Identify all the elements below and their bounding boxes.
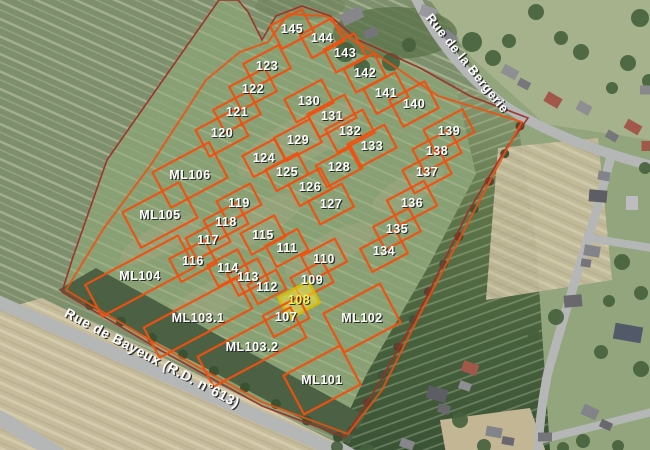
tree — [634, 286, 648, 300]
parcel-label-111: 111 — [277, 241, 298, 255]
parcel-label-129: 129 — [287, 133, 309, 147]
parcel-label-ML106: ML106 — [169, 168, 210, 182]
parcel-label-116: 116 — [182, 254, 204, 268]
parcel-label-118: 118 — [215, 215, 237, 229]
tree — [485, 50, 501, 66]
tree — [594, 345, 608, 359]
parcel-label-121: 121 — [226, 105, 248, 119]
parcel-label-143: 143 — [334, 46, 356, 60]
parcel-label-125: 125 — [276, 165, 298, 179]
house-roof — [580, 258, 591, 268]
tree — [614, 254, 630, 270]
tree — [573, 44, 589, 60]
parcel-label-135: 135 — [386, 222, 408, 236]
parcel-label-ML102: ML102 — [341, 311, 382, 325]
parcel-label-132: 132 — [339, 124, 361, 138]
parcel-label-119: 119 — [228, 196, 250, 210]
parcel-label-145: 145 — [281, 22, 303, 36]
parcel-label-137: 137 — [416, 165, 438, 179]
parcel-label-112: 112 — [256, 280, 278, 294]
parcel-label-139: 139 — [438, 124, 460, 138]
parcel-label-138: 138 — [426, 144, 448, 158]
house-roof — [642, 141, 650, 151]
aerial-parcel-map: 1451451441441431431421421411411401401231… — [0, 0, 650, 450]
house-roof — [589, 189, 608, 203]
parcel-label-120: 120 — [211, 126, 233, 140]
tree — [502, 34, 516, 48]
parcel-label-107: 107 — [275, 310, 297, 324]
parcel-label-142: 142 — [354, 66, 376, 80]
parcel-label-136: 136 — [401, 196, 423, 210]
parcel-label-ML104: ML104 — [119, 269, 160, 283]
house-roof — [564, 294, 583, 308]
parcel-label-117: 117 — [197, 233, 219, 247]
tree — [528, 4, 544, 20]
tree — [633, 361, 649, 377]
tree — [606, 82, 618, 94]
parcel-label-114: 114 — [217, 261, 239, 275]
parcel-label-128: 128 — [328, 160, 350, 174]
screenshot-root: 1451451441441431431421421411411401401231… — [0, 0, 650, 450]
parcel-label-141: 141 — [375, 86, 397, 100]
tree — [527, 327, 539, 339]
tree — [631, 9, 649, 27]
parcel-label-124: 124 — [253, 151, 275, 165]
parcel-label-131: 131 — [321, 109, 343, 123]
tree — [576, 434, 590, 448]
tree — [548, 309, 564, 325]
parcel-label-ML105: ML105 — [139, 208, 180, 222]
tree — [452, 412, 468, 428]
parcel-label-130: 130 — [298, 94, 320, 108]
parcel-label-ML103.2: ML103.2 — [226, 340, 279, 354]
house-roof — [538, 433, 552, 442]
house-roof — [626, 196, 638, 210]
parcel-label-140: 140 — [403, 97, 425, 111]
parcel-label-123: 123 — [256, 59, 278, 73]
parcel-label-133: 133 — [361, 139, 383, 153]
parcel-label-122: 122 — [242, 82, 264, 96]
tree — [620, 55, 636, 71]
house-roof — [640, 86, 650, 95]
parcel-label-109: 109 — [301, 273, 323, 287]
parcel-label-134: 134 — [373, 244, 395, 258]
parcel-label-115: 115 — [252, 228, 274, 242]
parcel-label-ML103.1: ML103.1 — [172, 311, 225, 325]
parcel-label-110: 110 — [313, 252, 335, 266]
tree — [402, 38, 416, 52]
tree — [554, 31, 568, 45]
parcel-label-127: 127 — [320, 197, 342, 211]
parcel-label-108: 108 — [288, 293, 310, 307]
tree — [603, 295, 615, 307]
parcel-label-ML101: ML101 — [301, 373, 342, 387]
parcel-label-144: 144 — [311, 31, 333, 45]
parcel-label-126: 126 — [299, 180, 321, 194]
